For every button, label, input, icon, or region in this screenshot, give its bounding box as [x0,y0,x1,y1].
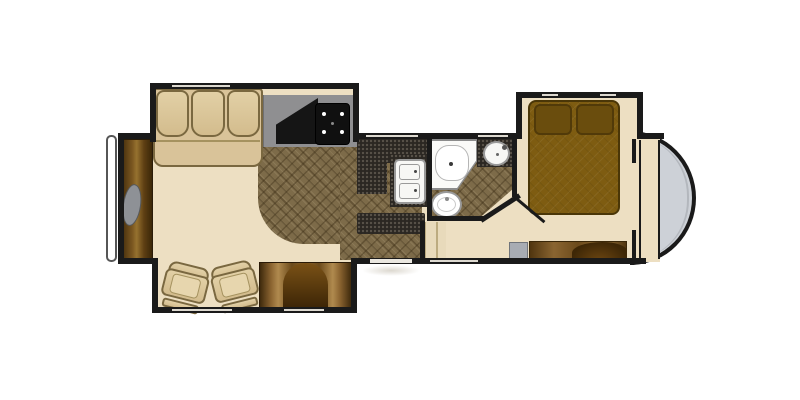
burner [322,112,326,116]
closet-wall [632,139,636,163]
sink-drain [414,189,417,192]
wall [427,216,485,221]
hall-wall [420,221,425,262]
wall [637,92,643,139]
toilet-flush-button [445,197,449,201]
window [172,309,232,311]
sofa-seat-line [156,140,260,142]
sink-bowl [399,183,420,199]
kitchen-sink [394,159,426,204]
pillow [576,104,614,135]
entry-door-gap [370,259,412,263]
burner [340,130,344,134]
sink-bowl [399,164,420,180]
wall [118,133,124,264]
window [172,85,230,87]
wall [351,258,357,313]
faucet [502,145,507,150]
kitchen-counter-left [357,139,387,194]
wall [516,92,643,98]
window [542,94,558,96]
rv-floor-plan [0,0,800,400]
entry-door-shadow [362,265,420,276]
sofa-cushion [191,90,225,137]
sofa-cushion [227,90,260,137]
vanity-round-sink [483,141,510,166]
window [478,135,508,137]
wall [516,92,522,139]
wall [427,137,432,221]
sink-drain [414,170,417,173]
hall-steps [424,222,446,261]
burner [322,130,326,134]
window [284,309,324,311]
closet-wall [632,230,636,260]
burner [340,112,344,116]
media-cabinet-arch [283,263,328,308]
hall-step-line [436,222,438,261]
wall [512,137,517,197]
kitchen-island [357,213,425,234]
stove [315,103,350,145]
toilet [431,191,462,218]
rear-bumper [106,135,117,262]
pillow [534,104,572,135]
sink-drain [496,153,499,156]
window [366,135,418,137]
shower-drain [449,162,453,166]
sofa-cushion [156,90,189,137]
front-wardrobe-closet [639,140,660,259]
stove-knob [331,122,334,125]
window [600,94,616,96]
wall [152,258,158,313]
window [430,260,478,262]
wall [430,133,522,139]
